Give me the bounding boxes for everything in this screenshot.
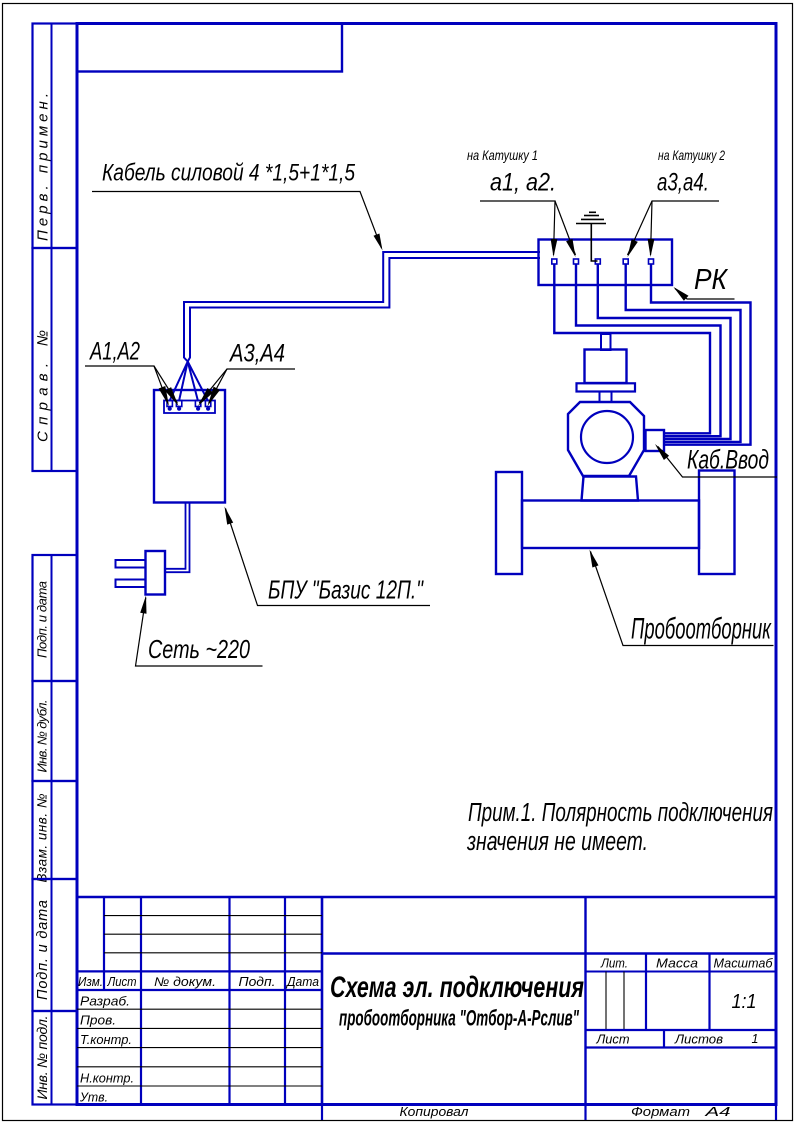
svg-text:Подп. и дата: Подп. и дата [35, 900, 51, 1000]
svg-text:Лист: Лист [107, 975, 137, 989]
svg-text:Взам. инв. №: Взам. инв. № [35, 793, 50, 882]
svg-text:1:1: 1:1 [732, 991, 757, 1013]
svg-text:Кабель силовой 4 *1,5+1*1,5: Кабель силовой 4 *1,5+1*1,5 [102, 160, 355, 187]
svg-text:Схема эл. подключения: Схема эл. подключения [330, 971, 584, 1004]
svg-text:Прим.1. Полярность подключения: Прим.1. Полярность подключения [468, 799, 773, 827]
svg-text:Лист: Лист [595, 1033, 629, 1047]
svg-text:а1, а2.: а1, а2. [490, 169, 556, 197]
svg-text:Инв. № дубл.: Инв. № дубл. [35, 700, 50, 773]
svg-text:А4: А4 [704, 1104, 731, 1119]
svg-text:Пров.: Пров. [80, 1014, 116, 1028]
svg-text:пробоотборника "Отбор-А-Рслив": пробоотборника "Отбор-А-Рслив" [339, 1006, 579, 1031]
svg-text:Масса: Масса [656, 957, 698, 971]
svg-text:№ докум.: № докум. [154, 975, 216, 989]
svg-text:Подп. и дата: Подп. и дата [35, 581, 50, 658]
svg-text:значения не имеет.: значения не имеет. [466, 828, 648, 856]
svg-text:Каб.Ввод: Каб.Ввод [687, 445, 769, 475]
svg-text:Инв. № подл.: Инв. № подл. [34, 1016, 50, 1100]
svg-text:Утв.: Утв. [79, 1091, 108, 1105]
svg-text:БПУ "Базис 12П.": БПУ "Базис 12П." [268, 575, 424, 605]
svg-text:Листов: Листов [674, 1033, 724, 1047]
svg-text:А3,А4: А3,А4 [228, 340, 285, 368]
svg-text:а3,а4.: а3,а4. [657, 169, 709, 197]
svg-text:Изм.: Изм. [78, 975, 103, 989]
svg-text:Пробоотборник: Пробоотборник [631, 613, 772, 646]
svg-text:Дата: Дата [285, 975, 319, 989]
svg-text:Разраб.: Разраб. [80, 995, 130, 1009]
svg-text:Т.контр.: Т.контр. [80, 1033, 132, 1047]
svg-text:на Катушку 1: на Катушку 1 [467, 147, 538, 163]
svg-text:РК: РК [694, 264, 729, 296]
svg-text:на Катушку 2: на Катушку 2 [658, 147, 725, 163]
svg-text:Формат: Формат [631, 1104, 690, 1119]
svg-text:Н.контр.: Н.контр. [80, 1072, 134, 1086]
svg-text:Перв. примен.: Перв. примен. [35, 93, 52, 241]
svg-text:Копировал: Копировал [400, 1104, 470, 1119]
svg-text:Сеть ~220: Сеть ~220 [148, 634, 250, 664]
svg-text:Подп.: Подп. [239, 975, 276, 989]
svg-text:1: 1 [752, 1032, 759, 1046]
svg-text:А1,А2: А1,А2 [89, 338, 141, 366]
svg-text:Масштаб: Масштаб [714, 957, 774, 971]
svg-text:Лит.: Лит. [600, 957, 628, 971]
